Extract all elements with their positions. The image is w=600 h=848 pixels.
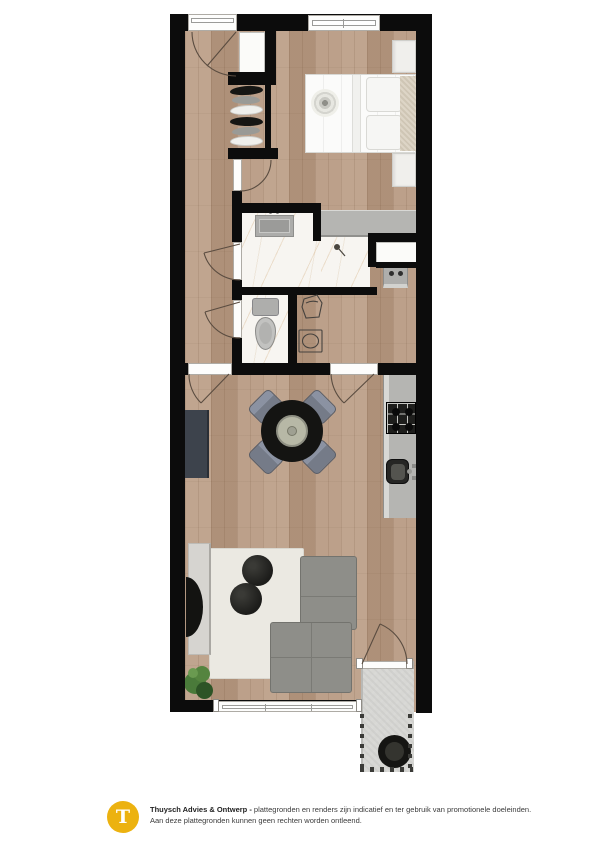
toilet-door-leaf bbox=[205, 302, 240, 312]
bathroom-door-leaf bbox=[204, 244, 240, 253]
footer: T Thuysch Advies & Ontwerp - plattegrond… bbox=[0, 790, 600, 848]
balcony-door-leaf bbox=[362, 624, 380, 664]
washing-machine-icon bbox=[299, 330, 322, 352]
annotation-layer bbox=[0, 0, 600, 848]
living-right-door-leaf bbox=[344, 374, 374, 403]
living-left-door-arc bbox=[189, 374, 201, 403]
laundry-basket-icon bbox=[302, 295, 322, 318]
floorplan bbox=[0, 0, 600, 848]
entry-door-leaf bbox=[207, 32, 236, 66]
living-right-door-arc bbox=[331, 374, 344, 403]
disclaimer-line-2: Aan deze plattegronden kunnen geen recht… bbox=[150, 815, 590, 826]
living-left-door-leaf bbox=[201, 374, 229, 403]
disclaimer-line-1: Thuysch Advies & Ontwerp - plattegronden… bbox=[150, 804, 590, 815]
bathroom-door-arc bbox=[204, 253, 240, 280]
footer-disclaimer: Thuysch Advies & Ontwerp - plattegronden… bbox=[150, 804, 590, 826]
balcony-door-arc bbox=[380, 624, 407, 664]
toilet-door-arc bbox=[205, 312, 240, 338]
shower-icon bbox=[334, 244, 345, 256]
brand-name: Thuysch Advies & Ontwerp - bbox=[150, 805, 252, 814]
bedroom-door-arc bbox=[240, 160, 271, 191]
logo-letter: T bbox=[116, 806, 130, 828]
thuysch-logo-icon: T bbox=[107, 801, 139, 833]
entry-door-arc bbox=[192, 32, 236, 76]
